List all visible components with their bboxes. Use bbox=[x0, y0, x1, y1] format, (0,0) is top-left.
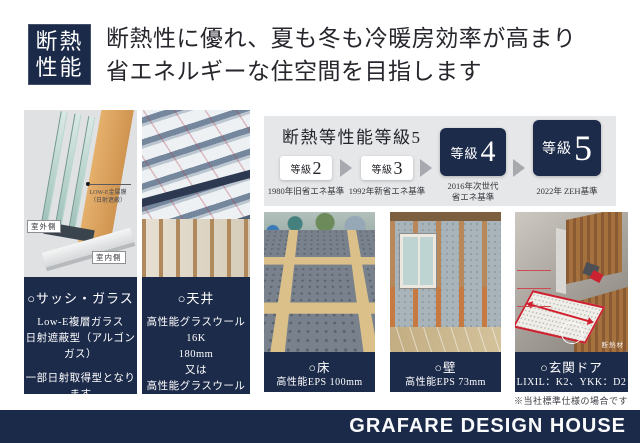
grade-panel-title: 断熱等性能等級5 bbox=[282, 123, 422, 148]
door-tile: 断熱材 ○玄関ドア LIXIL：K2、YKK：D2 bbox=[515, 212, 628, 352]
standard-spec-note: ※当社標準仕様の場合です bbox=[514, 394, 628, 407]
grade-3-box: 等級3 bbox=[361, 156, 413, 180]
arrow-right-icon bbox=[513, 159, 525, 177]
poster-canvas: 断熱 性能 断熱性に優れ、夏も冬も冷暖房効率が高まり 省エネルギーな住空間を目指… bbox=[0, 0, 640, 443]
grade-5-caption: 2022年 ZEH基準 bbox=[517, 186, 617, 197]
low-e-film-label: LOW-E金属膜 （日射遮蔽） bbox=[82, 190, 134, 205]
ceiling-insulation-photo bbox=[142, 110, 250, 277]
callout-line bbox=[517, 306, 551, 307]
grade-4-box: 等級4 bbox=[440, 128, 506, 176]
brand-logo-text: GRAFARE DESIGN HOUSE bbox=[349, 410, 626, 443]
ceiling-caption-title: ○天井 bbox=[142, 277, 250, 307]
ceiling-column: ○天井 高性能グラスウール16K 180mm 又は 高性能グラスウール24K 1… bbox=[142, 110, 250, 277]
footer-bar: GRAFARE DESIGN HOUSE bbox=[0, 410, 640, 443]
wall-tile: ○壁 高性能EPS 73mm bbox=[390, 212, 501, 352]
entrance-door-diagram: 断熱材 bbox=[515, 212, 628, 352]
wall-caption-title: ○壁 bbox=[390, 352, 501, 376]
insulation-performance-badge: 断熱 性能 bbox=[28, 24, 91, 85]
leader-line bbox=[89, 184, 131, 185]
callout-line bbox=[517, 288, 551, 289]
sash-column: LOW-E金属膜 （日射遮蔽） 室外側 室内側 ○サッシ・ガラス Low-E複層… bbox=[24, 110, 137, 277]
sash-caption-box: ○サッシ・ガラス Low-E複層ガラス 日射遮蔽型（アルゴンガス） 一部日射取得… bbox=[24, 277, 137, 394]
window-opening bbox=[400, 234, 436, 288]
wall-top-beam bbox=[390, 212, 501, 221]
detail-circle bbox=[561, 322, 583, 344]
title-line2: 省エネルギーな住空間を目指します bbox=[106, 55, 576, 88]
sash-caption-title: ○サッシ・ガラス bbox=[24, 277, 137, 307]
badge-line2: 性能 bbox=[35, 55, 83, 81]
sash-cross-section-diagram: LOW-E金属膜 （日射遮蔽） 室外側 室内側 bbox=[24, 110, 137, 277]
insulation-material-label: 断熱材 bbox=[602, 339, 625, 349]
door-caption-title: ○玄関ドア bbox=[515, 352, 628, 376]
ceiling-caption-box: ○天井 高性能グラスウール16K 180mm 又は 高性能グラスウール24K 1… bbox=[142, 277, 250, 394]
floor-tile: ○床 高性能EPS 100mm bbox=[264, 212, 375, 352]
grade-2-box: 等級2 bbox=[280, 156, 332, 180]
outdoor-side-label: 室外側 bbox=[27, 220, 61, 233]
floor-caption-box: ○床 高性能EPS 100mm bbox=[264, 352, 375, 392]
indoor-side-label: 室内側 bbox=[92, 251, 126, 264]
wall-studs bbox=[142, 219, 250, 277]
wall-caption-box: ○壁 高性能EPS 73mm bbox=[390, 352, 501, 392]
floor-insulation-photo bbox=[264, 212, 375, 352]
wall-insulation-photo bbox=[390, 212, 501, 352]
badge-line1: 断熱 bbox=[35, 29, 83, 55]
wood-floor bbox=[390, 327, 501, 352]
door-caption-box: ○玄関ドア LIXIL：K2、YKK：D2 bbox=[515, 352, 628, 392]
title-line1: 断熱性に優れ、夏も冬も冷暖房効率が高まり bbox=[106, 22, 576, 55]
floor-caption-title: ○床 bbox=[264, 352, 375, 376]
arrow-right-icon bbox=[340, 159, 352, 177]
callout-line bbox=[517, 270, 551, 271]
insulation-grade-panel: 断熱等性能等級5 等級2 等級3 等級4 等級5 1980年旧省エネ基準 199… bbox=[264, 116, 616, 206]
grade-5-box: 等級5 bbox=[533, 120, 601, 176]
grade-4-caption: 2016年次世代 省エネ基準 bbox=[423, 181, 523, 202]
arrow-right-icon bbox=[420, 159, 432, 177]
page-title: 断熱性に優れ、夏も冬も冷暖房効率が高まり 省エネルギーな住空間を目指します bbox=[106, 22, 576, 88]
grade-3-caption: 1992年新省エネ基準 bbox=[337, 186, 437, 197]
